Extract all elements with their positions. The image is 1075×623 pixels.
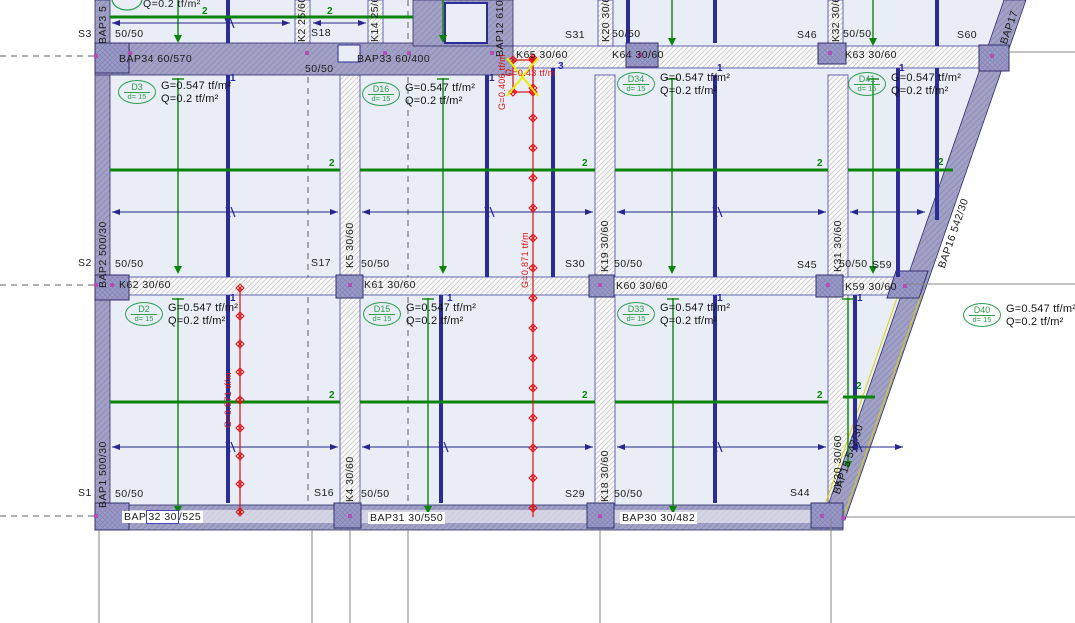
column-size-label: 50/50: [115, 488, 144, 500]
slab-tag: D41d= 15G=0.547 tf/m²Q=0.2 tf/m²: [848, 72, 961, 97]
slab-loads: G=0.547 tf/m²Q=0.2 tf/m²: [1006, 303, 1075, 328]
slab-loads: G=0.547 tf/m²Q=0.2 tf/m²: [168, 302, 238, 327]
slab-loads: G=0.547 tf/m²Q=0.2 tf/m²: [406, 302, 476, 327]
slab-tag: D15d= 15G=0.547 tf/m²Q=0.2 tf/m²: [363, 302, 476, 327]
beam-label: BAP31 30/550: [368, 512, 445, 524]
column-size-label: 50/50: [612, 28, 641, 40]
grid-label: S60: [957, 29, 977, 41]
span-number-2: 2: [856, 382, 862, 392]
slab-q-load: Q=0.2 tf/m²: [161, 93, 231, 106]
slab-g-load: G=0.547 tf/m²: [168, 302, 238, 315]
slab-id-circle: D15d= 15: [363, 302, 401, 326]
column-size-label: 50/50: [361, 258, 390, 270]
slab-id: D41: [859, 75, 876, 84]
span-number-2: 2: [329, 159, 335, 169]
grid-label: S18: [311, 27, 331, 39]
slab-g-load: G=0.547 tf/m²: [405, 82, 475, 95]
span-number-3: 3: [558, 62, 564, 72]
grid-label: S1: [78, 487, 92, 499]
span-number-2: 2: [582, 159, 588, 169]
slab-g-load: G=0.547 tf/m²: [891, 72, 961, 85]
partial-load-label: Q=0.2 tf/m²: [143, 0, 201, 10]
grid-label: S29: [565, 488, 585, 500]
slab-id: D16: [373, 85, 390, 94]
slab-id: D3: [131, 83, 143, 92]
beam-label-suffix: /525: [179, 511, 201, 523]
slab-loads: G=0.547 tf/m²Q=0.2 tf/m²: [660, 72, 730, 97]
span-number-1: 1: [489, 74, 495, 84]
slab-q-load: Q=0.2 tf/m²: [168, 315, 238, 328]
drawing-canvas[interactable]: Q=0.2 tf/m² BAP32 30/525 S350/50S1850/50…: [0, 0, 1075, 623]
column-size-label: 50/50: [843, 28, 872, 40]
span-number-2: 2: [327, 7, 333, 17]
beam-label: K59 30/60: [845, 281, 897, 293]
beam-label-rotated: BAP12 610/: [494, 0, 506, 57]
beam-label-rotated: K20 30/60: [600, 0, 612, 42]
slab-q-load: Q=0.2 tf/m²: [405, 95, 475, 108]
slab-loads: G=0.547 tf/m²Q=0.2 tf/m²: [891, 72, 961, 97]
slab-q-load: Q=0.2 tf/m²: [406, 315, 476, 328]
grid-label: S45: [797, 259, 817, 271]
load-value-label: G=0.871 tf/m: [521, 232, 530, 288]
column-size-label: 50/50: [614, 488, 643, 500]
slab-id: D40: [974, 306, 991, 315]
grid-label: S16: [314, 487, 334, 499]
slab-q-load: Q=0.2 tf/m²: [891, 85, 961, 98]
beam-label: K61 30/60: [364, 279, 416, 291]
slab-q-load: Q=0.2 tf/m²: [660, 315, 730, 328]
slab-thickness: d= 15: [131, 314, 157, 323]
slab-tag: D40d= 15G=0.547 tf/m²Q=0.2 tf/m²: [963, 303, 1075, 328]
beam-label-rotated: K2 25/60: [296, 0, 308, 42]
beam-label-rotated: K5 30/60: [344, 222, 356, 268]
slab-thickness: d= 15: [854, 84, 880, 93]
grid-label: S59: [872, 259, 892, 271]
grid-label: S46: [797, 29, 817, 41]
beam-label-rotated: K31 30/60: [832, 220, 844, 272]
beam-label: K64 30/60: [612, 49, 664, 61]
load-value-label: G=0.406 tf/m: [498, 54, 507, 110]
beam-label: K60 30/60: [616, 280, 668, 292]
span-number-2: 2: [817, 159, 823, 169]
slab-id-circle: D41d= 15: [848, 72, 886, 96]
slab-tag: D16d= 15G=0.547 tf/m²Q=0.2 tf/m²: [362, 82, 475, 107]
beam-label-rotated: K14 25/60: [369, 0, 381, 42]
slab-g-load: G=0.547 tf/m²: [406, 302, 476, 315]
column-size-label: 50/50: [115, 28, 144, 40]
slab-tag: D33d= 15G=0.547 tf/m²Q=0.2 tf/m²: [617, 302, 730, 327]
slab-loads: G=0.547 tf/m²Q=0.2 tf/m²: [161, 80, 231, 105]
slab-g-load: G=0.547 tf/m²: [660, 302, 730, 315]
column-size-label: 50/50: [305, 63, 334, 75]
beam-label-rotated: K4 30/60: [344, 456, 356, 502]
beam-label: K65 30/60: [516, 49, 568, 61]
beam-label-rotated: BAP1 500/30: [97, 441, 109, 508]
load-value-label: G=0.871 tf/m: [224, 372, 233, 428]
column-size-label: 50/50: [361, 488, 390, 500]
slab-id: D33: [628, 305, 645, 314]
beam-label-editing[interactable]: BAP32 30/525: [122, 511, 203, 523]
slab-tag: D3d= 15G=0.547 tf/m²Q=0.2 tf/m²: [118, 80, 231, 105]
grid-label: S2: [78, 257, 92, 269]
slab-id-circle: D16d= 15: [362, 82, 400, 106]
column-size-label: 50/50: [614, 258, 643, 270]
slab-id-circle: D34d= 15: [617, 72, 655, 96]
span-number-1: 1: [857, 294, 863, 304]
slab-g-load: G=0.547 tf/m²: [1006, 303, 1075, 316]
span-number-2: 2: [938, 158, 944, 168]
slab-id: D2: [138, 305, 150, 314]
slab-id-circle: D3d= 15: [118, 80, 156, 104]
slab-id-circle: D33d= 15: [617, 302, 655, 326]
beam-label: BAP34 60/570: [119, 53, 192, 65]
slab-thickness: d= 15: [623, 314, 649, 323]
beam-label-rotated: BAP2 500/30: [97, 221, 109, 288]
slab-g-load: G=0.547 tf/m²: [660, 72, 730, 85]
beam-label: BAP30 30/482: [620, 512, 697, 524]
slab-id: D34: [628, 75, 645, 84]
beam-label-rotated: BAP3 5: [97, 6, 109, 44]
grid-label: S31: [565, 29, 585, 41]
grid-label: S3: [78, 28, 92, 40]
slab-q-load: Q=0.2 tf/m²: [1006, 316, 1075, 329]
slab-g-load: G=0.547 tf/m²: [161, 80, 231, 93]
span-number-2: 2: [329, 391, 335, 401]
column-size-label: 50/50: [115, 258, 144, 270]
load-value-label: G=0.43 tf/m: [505, 69, 556, 78]
slab-id: D15: [374, 305, 391, 314]
slab-loads: G=0.547 tf/m²Q=0.2 tf/m²: [405, 82, 475, 107]
grid-label: S17: [311, 257, 331, 269]
slab-id-circle: D2d= 15: [125, 302, 163, 326]
beam-label: K62 30/60: [119, 279, 171, 291]
slab-thickness: d= 15: [969, 315, 995, 324]
beam-label-editbox[interactable]: 32 30: [146, 510, 179, 524]
beam-label: K63 30/60: [845, 49, 897, 61]
slab-thickness: d= 15: [368, 94, 394, 103]
slab-tag: D2d= 15G=0.547 tf/m²Q=0.2 tf/m²: [125, 302, 238, 327]
span-number-2: 2: [582, 391, 588, 401]
slab-loads: G=0.547 tf/m²Q=0.2 tf/m²: [660, 302, 730, 327]
beam-label-rotated: K32 30/60: [830, 0, 842, 42]
slab-thickness: d= 15: [124, 92, 150, 101]
beam-label-rotated: K19 30/60: [599, 220, 611, 272]
slab-id-circle: D40d= 15: [963, 303, 1001, 327]
beam-label-rotated: K18 30/60: [599, 450, 611, 502]
slab-q-load: Q=0.2 tf/m²: [660, 85, 730, 98]
slab-tag: D34d= 15G=0.547 tf/m²Q=0.2 tf/m²: [617, 72, 730, 97]
span-number-2: 2: [202, 7, 208, 17]
beam-label-prefix: BAP: [124, 511, 146, 523]
slab-thickness: d= 15: [369, 314, 395, 323]
grid-label: S30: [565, 258, 585, 270]
slab-thickness: d= 15: [623, 84, 649, 93]
grid-label: S44: [790, 487, 810, 499]
span-number-2: 2: [817, 391, 823, 401]
beam-label: BAP33 60/400: [357, 53, 430, 65]
